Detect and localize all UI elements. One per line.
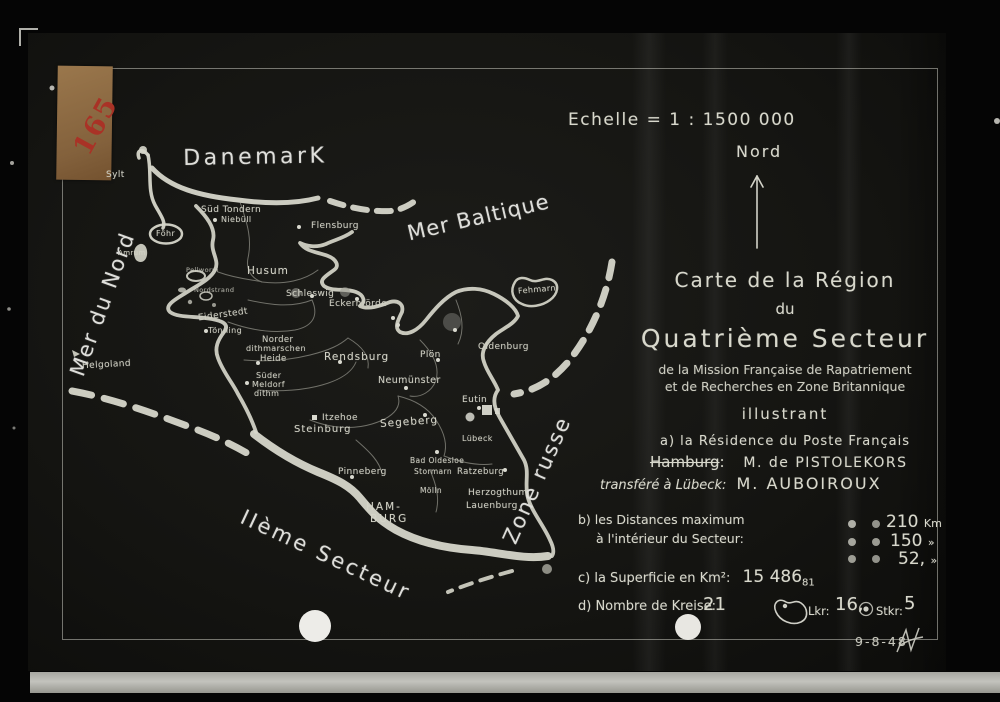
map-label-itzehoe: Itzehoe bbox=[322, 413, 358, 423]
crossed-city: Hamburg bbox=[650, 453, 720, 471]
date-label: 9-8-48 bbox=[855, 634, 908, 649]
map-label-niebuell: Niebüll bbox=[221, 215, 252, 224]
map-label-husum: Husum bbox=[247, 265, 289, 277]
legend-item-a: a) la Résidence du Poste Français bbox=[585, 434, 985, 449]
map-label-nordstrand: Nordstrand bbox=[194, 286, 234, 294]
map-label-pinneberg: Pinneberg bbox=[338, 467, 387, 477]
map-label-schleswig: Schleswig bbox=[286, 289, 334, 299]
distance-row-0: 210 Km bbox=[886, 512, 942, 532]
map-label-eutin: Eutin bbox=[462, 395, 487, 405]
distance-value: 150 bbox=[890, 531, 922, 551]
title-line-1: Carte de la Région bbox=[585, 268, 985, 292]
map-label-ratzeburg: Ratzeburg bbox=[457, 467, 504, 477]
map-label-flensburg: Flensburg bbox=[311, 221, 359, 231]
distance-row-2: 52, » bbox=[898, 549, 937, 569]
map-label-danemark: DanemarK bbox=[183, 143, 328, 171]
map-label-luebeck: Lübeck bbox=[462, 434, 493, 443]
surface-label: c) la Superficie en Km²: bbox=[578, 571, 730, 586]
map-label-hamburg-2: BURG bbox=[370, 513, 408, 525]
map-label-toenning: Tönning bbox=[208, 326, 242, 335]
map-label-eckernfoerde: Eckernförde bbox=[329, 299, 387, 309]
title-block: Carte de la Région du Quatrième Secteur … bbox=[585, 268, 985, 449]
map-label-sueder-1: Süder bbox=[256, 371, 281, 380]
archive-sticker: 165 bbox=[56, 66, 113, 181]
map-label-bad-oldesloe: Bad Oldesloe bbox=[410, 456, 464, 465]
chief-name-1: M. de PISTOLEKORS bbox=[743, 455, 907, 471]
map-label-foehr: Föhr bbox=[156, 229, 175, 238]
map-label-sueder-2: Meldorf bbox=[252, 380, 285, 389]
transfer-prefix: transféré à Lübeck: bbox=[600, 478, 726, 493]
map-label-neumuenster: Neumünster bbox=[378, 375, 441, 386]
north-arrow bbox=[751, 176, 763, 248]
distance-row-1: 150 » bbox=[890, 531, 935, 551]
scan-edge-strip bbox=[30, 672, 1000, 693]
title-line-3: Quatrième Secteur bbox=[585, 324, 985, 353]
map-label-sueder-3: dithm bbox=[254, 389, 279, 398]
distance-value: 52, bbox=[898, 549, 925, 569]
scale-label: Echelle = 1 : 1500 000 bbox=[568, 110, 796, 130]
punch-holes bbox=[299, 610, 701, 642]
map-label-pellworm: Pellworm bbox=[186, 266, 219, 274]
title-line-5: et de Recherches en Zone Britannique bbox=[585, 379, 985, 394]
lkr-value: 16, bbox=[835, 594, 864, 615]
distances-label-2: à l'intérieur du Secteur: bbox=[596, 531, 744, 546]
distances-label-1: b) les Distances maximum bbox=[578, 512, 745, 527]
distance-value: 210 bbox=[886, 512, 918, 532]
map-label-steinburg: Steinburg bbox=[294, 424, 352, 435]
map-label-ploen: Plön bbox=[420, 350, 441, 360]
map-label-heide: Heide bbox=[260, 354, 287, 364]
residence-line-1: Hamburg: M. de PISTOLEKORS bbox=[650, 453, 908, 471]
stkr-value: 5 bbox=[904, 593, 915, 614]
title-line-2: du bbox=[585, 300, 985, 318]
distance-dots bbox=[848, 520, 880, 563]
distance-unit: » bbox=[928, 536, 935, 549]
map-label-amrum: Amrum bbox=[118, 249, 146, 257]
map-label-stormarn: Stormarn bbox=[414, 467, 452, 476]
stkr-label: Stkr: bbox=[876, 604, 903, 618]
distance-unit: » bbox=[930, 554, 937, 567]
map-label-sylt: Sylt bbox=[106, 170, 125, 180]
scanned-map-photo: 165 DanemarK Mer du Nord Mer Baltique Zo… bbox=[0, 0, 1000, 702]
map-label-sued-tondern: Süd Tondern bbox=[201, 205, 261, 215]
lkr-label: Lkr: bbox=[808, 604, 829, 618]
title-line-4: de la Mission Française de Rapatriement bbox=[585, 362, 985, 377]
chief-name-2: M. AUBOIROUX bbox=[737, 474, 882, 493]
title-line-6: illustrant bbox=[585, 405, 985, 423]
surface-value: 15 486 bbox=[743, 567, 802, 587]
surface-line: c) la Superficie en Km²: 15 48681 bbox=[578, 567, 815, 589]
map-label-hamburg-1: HAM- bbox=[366, 501, 402, 513]
map-label-oldenburg: Oldenburg bbox=[478, 342, 529, 352]
kreise-total: 21 bbox=[703, 594, 726, 615]
north-label: Nord bbox=[736, 142, 782, 161]
kreise-label: d) Nombre de Kreise: bbox=[578, 599, 716, 614]
surface-decimals: 81 bbox=[802, 578, 815, 589]
lkr-icon bbox=[775, 600, 807, 623]
distance-unit: Km bbox=[924, 517, 942, 530]
map-label-moelln: Mölln bbox=[420, 486, 442, 495]
map-label-rendsburg: Rendsburg bbox=[324, 351, 389, 363]
colon: : bbox=[720, 453, 725, 471]
map-label-lauenburg: Lauenburg bbox=[466, 501, 518, 511]
corner-mark bbox=[20, 29, 38, 46]
residence-line-2: transféré à Lübeck: M. AUBOIROUX bbox=[600, 474, 882, 493]
map-label-herzogthum: Herzogthum bbox=[468, 488, 528, 498]
map-label-norder-dithmarschen-2: dithmarschen bbox=[246, 344, 306, 353]
